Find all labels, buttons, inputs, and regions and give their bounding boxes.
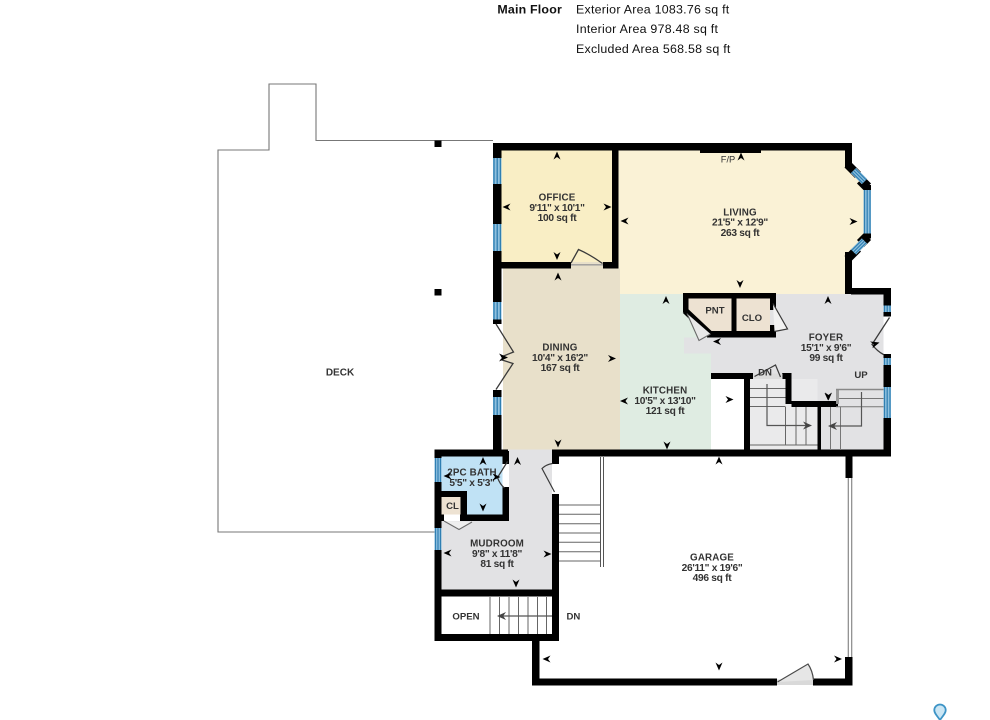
svg-text:UP: UP (854, 370, 868, 381)
svg-text:DECK: DECK (326, 368, 355, 379)
svg-text:F/P: F/P (721, 155, 735, 165)
svg-text:167 sq ft: 167 sq ft (541, 363, 581, 374)
svg-text:Main Floor: Main Floor (497, 3, 562, 17)
svg-text:496 sq ft: 496 sq ft (693, 573, 733, 584)
svg-text:121 sq ft: 121 sq ft (646, 406, 686, 417)
svg-text:263 sq ft: 263 sq ft (721, 228, 761, 239)
svg-text:Interior Area 978.48 sq ft: Interior Area 978.48 sq ft (576, 22, 718, 36)
svg-text:PNT: PNT (705, 306, 724, 317)
svg-text:DN: DN (567, 612, 581, 623)
svg-text:DN: DN (758, 368, 772, 379)
svg-text:100 sq ft: 100 sq ft (538, 213, 578, 224)
svg-text:2PC BATH: 2PC BATH (447, 467, 496, 478)
svg-text:Exterior Area 1083.76 sq ft: Exterior Area 1083.76 sq ft (576, 3, 730, 17)
svg-text:CL: CL (446, 501, 459, 512)
svg-text:99 sq ft: 99 sq ft (809, 353, 843, 364)
svg-text:81 sq ft: 81 sq ft (480, 559, 514, 570)
svg-text:5'5" x 5'3": 5'5" x 5'3" (449, 478, 495, 489)
svg-text:CLO: CLO (742, 313, 763, 324)
svg-text:OPEN: OPEN (452, 612, 479, 623)
svg-text:Excluded Area 568.58 sq ft: Excluded Area 568.58 sq ft (576, 42, 731, 56)
